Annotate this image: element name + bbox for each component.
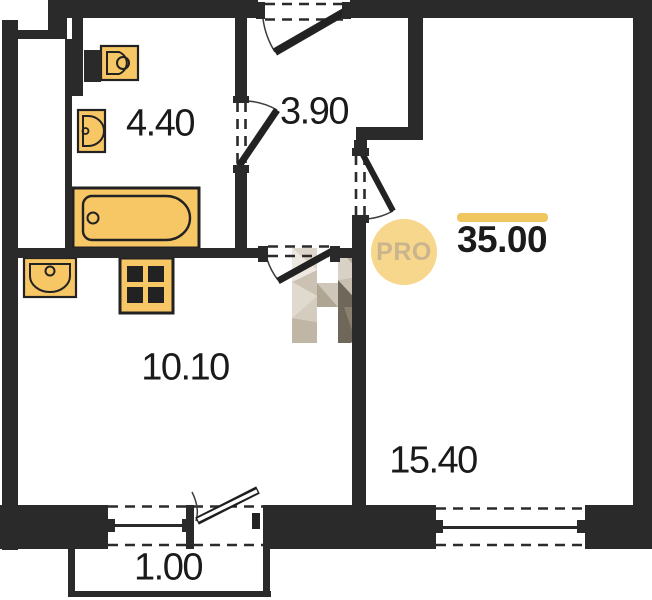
entrance-door-leaf [275,11,346,52]
room-area-label: 15.40 [389,440,477,483]
kitchen-living-area-label: 10.10 [141,347,229,390]
hallway-area-label: 3.90 [280,91,348,134]
balcony-area-label: 1.00 [134,547,202,590]
floor-plan: 4.40 3.90 10.10 15.40 1.00 35.00 PRO [0,0,652,600]
wall-segment [408,18,423,130]
wall-segment [65,39,72,248]
balcony-wall [68,547,75,597]
window-glass-line [108,524,184,527]
balcony-wall [263,547,270,594]
wall-segment [352,223,366,505]
window-post [432,520,443,533]
fixtures [24,46,199,313]
stove-icon [120,258,173,313]
door-post [352,215,369,223]
wall-segment [18,248,260,258]
wall-segment [350,0,652,18]
wall-segment [585,505,652,549]
wall-segment [72,18,83,96]
door-post [352,148,369,156]
wall-segment [263,505,436,549]
wall-segment [338,248,356,258]
door-post [233,96,249,103]
door-post [256,2,265,19]
room-door-leaf [362,152,394,211]
kitchen-sink-icon [24,258,76,297]
pro-badge: PRO [371,219,437,285]
balcony-wall [68,591,271,597]
bathroom-area-label: 4.40 [126,103,194,146]
balcony-door-latch [252,513,260,529]
window-glass-line [443,526,579,529]
bathtub-icon [73,188,199,248]
wall-segment [356,127,423,140]
total-area-label: 35.00 [457,219,547,261]
toilet-icon [101,46,138,80]
wall-segment [633,0,652,547]
wall-segment [235,172,247,248]
sink-icon [78,110,105,152]
wall-segment [18,30,67,39]
door-post [258,246,268,262]
wall-segment [235,18,247,98]
toilet-tank [84,50,101,82]
wall-segment [2,20,18,550]
wall-segment [0,505,108,549]
wall-segment [48,0,258,18]
